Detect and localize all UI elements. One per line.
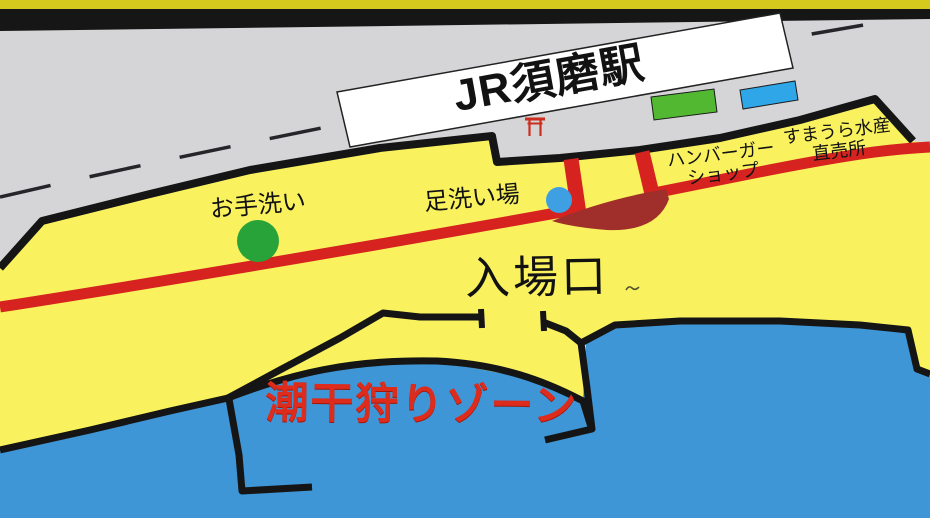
entrance-label: 入場口	[465, 252, 610, 303]
station-access-road-left	[571, 159, 579, 214]
station-access-road-right	[642, 152, 653, 198]
suma-beach-guide-map: JR須磨駅 すまうら水産 直売所 ハンバーガー ショップ お手洗い 足洗い場 入…	[0, 0, 930, 518]
entrance-gate-left-post	[481, 309, 482, 328]
clam-zone-label: 潮干狩りゾーン	[265, 380, 578, 430]
top-yellow-strip	[0, 0, 930, 9]
restroom-marker-icon	[237, 220, 279, 262]
foot-wash-marker-icon	[546, 187, 572, 213]
